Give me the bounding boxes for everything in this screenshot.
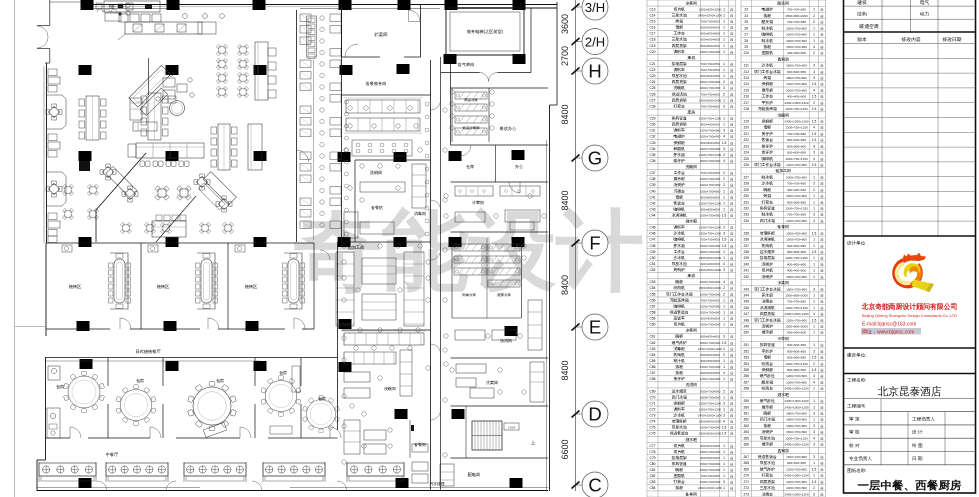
svg-text:1: 1 xyxy=(723,450,725,454)
svg-text:1800×700×800: 1800×700×800 xyxy=(700,159,721,163)
svg-text:270: 270 xyxy=(743,474,749,478)
svg-text:1500×700×800: 1500×700×800 xyxy=(700,365,721,369)
svg-text:213: 213 xyxy=(743,76,749,80)
svg-text:C60: C60 xyxy=(649,323,655,327)
svg-text:2400×1000×1200: 2400×1000×1200 xyxy=(784,405,809,409)
svg-text:211: 211 xyxy=(744,64,749,68)
svg-text:8400: 8400 xyxy=(560,275,570,295)
svg-text:2000×700×800: 2000×700×800 xyxy=(700,280,721,284)
svg-text:1000×700×800: 1000×700×800 xyxy=(700,292,721,296)
svg-text:1: 1 xyxy=(813,405,815,409)
svg-text:烧烤区: 烧烤区 xyxy=(68,284,82,289)
svg-text:1: 1 xyxy=(723,256,725,260)
svg-text:工程编号: 工程编号 xyxy=(847,403,866,409)
svg-text:1: 1 xyxy=(723,32,725,36)
svg-text:燃气炒灶: 燃气炒灶 xyxy=(759,373,775,378)
svg-text:咖啡机: 咖啡机 xyxy=(674,303,686,308)
svg-text:排风管道: 排风管道 xyxy=(759,342,775,347)
svg-text:4: 4 xyxy=(813,436,815,440)
svg-text:1: 1 xyxy=(723,189,725,193)
svg-text:219: 219 xyxy=(743,120,749,124)
svg-text:3: 3 xyxy=(723,129,725,133)
svg-text:运水烟罩: 运水烟罩 xyxy=(759,249,775,254)
svg-text:4: 4 xyxy=(813,380,815,384)
svg-text:222: 222 xyxy=(743,138,749,142)
svg-text:1: 1 xyxy=(813,175,815,179)
svg-text:24: 24 xyxy=(744,14,748,18)
svg-text:2: 2 xyxy=(723,171,725,175)
svg-text:暖通空调: 暖通空调 xyxy=(859,23,878,30)
svg-text:1.5: 1.5 xyxy=(722,341,727,345)
svg-text:汤粥炉: 汤粥炉 xyxy=(761,324,774,329)
svg-text:1.5: 1.5 xyxy=(722,244,727,248)
svg-text:268: 268 xyxy=(743,461,749,465)
svg-text:四门冰箱: 四门冰箱 xyxy=(760,417,775,422)
svg-text:263: 263 xyxy=(743,424,749,428)
svg-text:1800×700×800: 1800×700×800 xyxy=(700,86,721,90)
svg-text:1500×800×2000: 1500×800×2000 xyxy=(699,432,722,436)
svg-text:1: 1 xyxy=(723,26,725,30)
svg-text:27: 27 xyxy=(744,33,748,37)
svg-text:C50: C50 xyxy=(649,256,655,260)
svg-text:269: 269 xyxy=(743,467,749,471)
svg-text:8400: 8400 xyxy=(560,104,570,124)
svg-text:2: 2 xyxy=(813,101,815,105)
svg-text:洗碗间: 洗碗间 xyxy=(778,112,790,117)
svg-text:C71: C71 xyxy=(649,401,655,405)
svg-text:C32: C32 xyxy=(649,135,655,139)
svg-text:1200×700×800: 1200×700×800 xyxy=(700,304,721,308)
svg-text:1: 1 xyxy=(813,300,815,304)
svg-text:蒸柜: 蒸柜 xyxy=(763,44,772,49)
svg-text:C57: C57 xyxy=(649,304,655,308)
svg-text:展示柜: 展示柜 xyxy=(761,330,774,335)
svg-text:低温冷藏库: 低温冷藏库 xyxy=(462,125,481,130)
svg-text:26: 26 xyxy=(744,26,748,30)
svg-text:1: 1 xyxy=(723,365,725,369)
svg-text:600×600×850: 600×600×850 xyxy=(787,349,806,353)
svg-text:1200×700×800: 1200×700×800 xyxy=(786,318,807,322)
svg-text:C31: C31 xyxy=(649,129,655,133)
svg-text:1-D5A: 1-D5A xyxy=(508,426,516,430)
svg-text:400×400×600: 400×400×600 xyxy=(787,188,806,192)
svg-text:3/H: 3/H xyxy=(585,0,605,15)
svg-text:800×800×800: 800×800×800 xyxy=(700,335,719,339)
svg-text:700×700×850: 700×700×850 xyxy=(700,92,719,96)
svg-text:4: 4 xyxy=(723,135,725,139)
svg-text:3: 3 xyxy=(813,70,815,74)
svg-text:700×700×850: 700×700×850 xyxy=(787,300,806,304)
svg-text:北京奇能商厨设计顾问有限公司: 北京奇能商厨设计顾问有限公司 xyxy=(861,302,958,311)
svg-text:2400×1000×1200: 2400×1000×1200 xyxy=(698,347,723,351)
svg-text:247: 247 xyxy=(743,312,749,316)
svg-text:3: 3 xyxy=(723,414,725,418)
svg-text:223: 223 xyxy=(743,144,749,148)
svg-text:4: 4 xyxy=(723,159,725,163)
svg-text:冷荤间: 冷荤间 xyxy=(778,336,790,341)
svg-text:2400×1000×1200: 2400×1000×1200 xyxy=(784,387,809,391)
svg-text:C74: C74 xyxy=(649,420,655,424)
svg-text:1: 1 xyxy=(723,486,725,490)
svg-text:2000×700×800: 2000×700×800 xyxy=(700,389,721,393)
svg-text:雪柜: 雪柜 xyxy=(675,25,683,30)
svg-text:250: 250 xyxy=(743,331,749,335)
svg-text:1: 1 xyxy=(813,244,815,248)
svg-text:燃气炸炉: 燃气炸炉 xyxy=(671,340,687,345)
svg-text:1500×800×2000: 1500×800×2000 xyxy=(785,14,808,18)
svg-text:260: 260 xyxy=(743,405,749,409)
svg-text:2: 2 xyxy=(723,153,725,157)
svg-text:切片机: 切片机 xyxy=(673,322,686,327)
svg-text:2: 2 xyxy=(723,183,725,187)
svg-text:1500×800×2000: 1500×800×2000 xyxy=(699,256,722,260)
svg-text:C30: C30 xyxy=(649,123,655,127)
svg-text:平扒炉: 平扒炉 xyxy=(761,100,774,105)
svg-text:800×800×800: 800×800×800 xyxy=(700,456,719,460)
svg-text:1.5: 1.5 xyxy=(722,238,727,242)
svg-text:双星水池: 双星水池 xyxy=(672,73,688,78)
svg-text:沙冰机: 沙冰机 xyxy=(761,63,774,68)
svg-text:1: 1 xyxy=(813,238,815,242)
svg-text:上: 上 xyxy=(531,440,536,445)
svg-text:2400×1000×1200: 2400×1000×1200 xyxy=(784,312,809,316)
svg-text:切片机: 切片机 xyxy=(673,443,686,448)
svg-text:2: 2 xyxy=(723,286,725,290)
svg-text:1000×700×800: 1000×700×800 xyxy=(786,380,807,384)
svg-text:2000×700×800: 2000×700×800 xyxy=(786,88,807,92)
svg-text:C79: C79 xyxy=(649,456,655,460)
svg-text:249: 249 xyxy=(743,325,749,329)
svg-text:1.5: 1.5 xyxy=(812,82,817,86)
svg-text:排风管道: 排风管道 xyxy=(759,205,775,210)
svg-text:版本: 版本 xyxy=(856,37,867,43)
svg-text:1200×700×800: 1200×700×800 xyxy=(786,374,807,378)
svg-text:1: 1 xyxy=(723,201,725,205)
svg-text:汤粥炉: 汤粥炉 xyxy=(761,429,774,434)
svg-text:四层货架: 四层货架 xyxy=(672,79,687,84)
svg-text:1000×700×800: 1000×700×800 xyxy=(700,183,721,187)
svg-text:1000×700×800: 1000×700×800 xyxy=(786,486,807,490)
svg-text:400×400×600: 400×400×600 xyxy=(700,123,719,127)
svg-text:C20: C20 xyxy=(649,50,655,54)
svg-text:保鲜柜: 保鲜柜 xyxy=(673,140,686,145)
svg-text:双门工作台冰箱: 双门工作台冰箱 xyxy=(754,286,781,291)
svg-text:C54: C54 xyxy=(649,286,655,290)
svg-text:271: 271 xyxy=(743,480,749,484)
svg-text:800×800×800: 800×800×800 xyxy=(787,368,806,372)
svg-text:C16: C16 xyxy=(649,26,655,30)
svg-text:224: 224 xyxy=(743,151,749,155)
svg-text:700×700×850: 700×700×850 xyxy=(700,171,719,175)
svg-text:建筑: 建筑 xyxy=(856,0,867,6)
svg-text:电气: 电气 xyxy=(920,0,930,6)
svg-text:234: 234 xyxy=(743,219,749,223)
svg-text:C80: C80 xyxy=(649,462,655,466)
svg-text:1500×700×800: 1500×700×800 xyxy=(700,462,721,466)
svg-text:库房: 库房 xyxy=(686,109,695,114)
svg-text:C51: C51 xyxy=(649,262,655,266)
svg-text:蒸柜: 蒸柜 xyxy=(763,423,772,428)
svg-text:C18: C18 xyxy=(649,38,655,42)
svg-text:1: 1 xyxy=(813,8,815,12)
svg-text:备餐间: 备餐间 xyxy=(777,224,790,229)
svg-text:中餐厅: 中餐厅 xyxy=(106,452,119,457)
svg-text:沙冰机: 沙冰机 xyxy=(673,231,686,236)
svg-text:玻璃杯柜: 玻璃杯柜 xyxy=(671,419,687,424)
svg-text:1: 1 xyxy=(723,13,725,17)
svg-text:和面机: 和面机 xyxy=(674,146,686,151)
svg-text:241: 241 xyxy=(743,269,749,273)
svg-text:压面机: 压面机 xyxy=(761,50,774,55)
svg-text:3: 3 xyxy=(813,213,815,217)
svg-text:4: 4 xyxy=(813,45,815,49)
svg-text:咖啡机: 咖啡机 xyxy=(674,206,686,211)
svg-text:制冰机: 制冰机 xyxy=(761,212,774,217)
svg-text:800×800×800: 800×800×800 xyxy=(700,353,719,357)
svg-text:洗碗间: 洗碗间 xyxy=(686,164,698,169)
svg-text:万能蒸烤箱: 万能蒸烤箱 xyxy=(669,297,689,302)
svg-text:调料车: 调料车 xyxy=(673,49,686,54)
svg-text:1800×700×800: 1800×700×800 xyxy=(700,80,721,84)
svg-text:259: 259 xyxy=(743,399,749,403)
svg-text:蒸柜: 蒸柜 xyxy=(674,485,683,490)
svg-text:800×800×800: 800×800×800 xyxy=(700,32,719,36)
svg-text:1800×700×800: 1800×700×800 xyxy=(786,76,807,80)
svg-text:3: 3 xyxy=(723,86,725,90)
svg-text:1200×750×1250: 1200×750×1250 xyxy=(785,107,808,111)
svg-text:1: 1 xyxy=(723,468,725,472)
svg-text:烤鸭炉: 烤鸭炉 xyxy=(673,267,686,272)
svg-text:1200×700×800: 1200×700×800 xyxy=(786,467,807,471)
svg-text:210: 210 xyxy=(743,51,749,55)
svg-text:4: 4 xyxy=(813,374,815,378)
svg-text:碗柜: 碗柜 xyxy=(763,411,772,416)
svg-text:冰淇淋机: 冰淇淋机 xyxy=(672,213,687,218)
svg-text:1: 1 xyxy=(723,50,725,54)
svg-text:3: 3 xyxy=(723,335,725,339)
svg-text:双门工作台冰箱: 双门工作台冰箱 xyxy=(754,69,781,74)
svg-text:2: 2 xyxy=(723,292,725,296)
svg-text:蒸柜: 蒸柜 xyxy=(674,364,683,369)
svg-text:2400×1000×1200: 2400×1000×1200 xyxy=(784,443,809,447)
svg-text:E: E xyxy=(589,317,601,338)
svg-text:4: 4 xyxy=(813,126,815,130)
svg-text:254: 254 xyxy=(743,362,749,366)
svg-text:C66: C66 xyxy=(649,365,655,369)
svg-text:1: 1 xyxy=(813,256,815,260)
svg-text:231: 231 xyxy=(743,200,749,204)
svg-text:汤粥炉: 汤粥炉 xyxy=(673,182,686,187)
svg-text:C72: C72 xyxy=(649,407,655,411)
svg-text:236: 236 xyxy=(743,238,749,242)
svg-text:2: 2 xyxy=(723,92,725,96)
svg-text:1500×700×800: 1500×700×800 xyxy=(700,450,721,454)
svg-text:C41: C41 xyxy=(649,195,655,199)
svg-text:8400: 8400 xyxy=(560,190,570,210)
svg-text:1000×700×800: 1000×700×800 xyxy=(786,219,807,223)
svg-text:调料车: 调料车 xyxy=(673,225,686,230)
svg-text:217: 217 xyxy=(743,101,749,105)
svg-text:碗柜: 碗柜 xyxy=(674,467,683,472)
svg-text:1000×700×800: 1000×700×800 xyxy=(700,323,721,327)
svg-text:保温售饭台: 保温售饭台 xyxy=(669,431,689,436)
svg-text:1500×800×2000: 1500×800×2000 xyxy=(699,268,722,272)
svg-text:烤箱: 烤箱 xyxy=(763,75,772,80)
svg-text:3: 3 xyxy=(723,104,725,108)
svg-text:28: 28 xyxy=(744,39,748,43)
svg-text:3: 3 xyxy=(813,443,815,447)
svg-text:保鲜柜: 保鲜柜 xyxy=(761,119,774,124)
svg-text:2: 2 xyxy=(723,177,725,181)
svg-text:工作台: 工作台 xyxy=(761,94,774,99)
svg-text:C38: C38 xyxy=(649,177,655,181)
svg-text:245: 245 xyxy=(743,300,749,304)
svg-text:雪柜: 雪柜 xyxy=(764,355,772,360)
svg-text:烧烤区: 烧烤区 xyxy=(156,284,170,289)
svg-text:1: 1 xyxy=(723,407,725,411)
svg-text:C53: C53 xyxy=(649,280,655,284)
svg-text:1: 1 xyxy=(813,262,815,266)
svg-text:工程名称:: 工程名称: xyxy=(847,377,867,383)
svg-text:打荷台: 打荷台 xyxy=(673,479,686,484)
svg-text:西厨房: 西厨房 xyxy=(777,56,790,61)
svg-text:C36: C36 xyxy=(649,159,655,163)
svg-text:四层货架: 四层货架 xyxy=(672,122,687,127)
svg-text:1: 1 xyxy=(723,323,725,327)
svg-text:1800×700×800: 1800×700×800 xyxy=(786,418,807,422)
svg-text:煲仔炉: 煲仔炉 xyxy=(673,376,686,381)
svg-text:1.5: 1.5 xyxy=(722,141,727,145)
svg-text:H: H xyxy=(588,61,601,82)
svg-text:排风管道: 排风管道 xyxy=(671,116,687,121)
svg-text:蒸柜: 蒸柜 xyxy=(674,370,683,375)
svg-text:2: 2 xyxy=(723,389,725,393)
svg-text:1500×700×800: 1500×700×800 xyxy=(786,430,807,434)
svg-text:打荷台: 打荷台 xyxy=(673,103,686,108)
svg-text:2000×700×800: 2000×700×800 xyxy=(700,310,721,314)
svg-text:2400×1000×1200: 2400×1000×1200 xyxy=(784,120,809,124)
svg-text:1: 1 xyxy=(723,20,725,24)
svg-text:C49: C49 xyxy=(649,250,655,254)
svg-text:2000×700×800: 2000×700×800 xyxy=(786,39,807,43)
svg-text:251: 251 xyxy=(743,343,749,347)
svg-text:双门工作台冰箱: 双门工作台冰箱 xyxy=(666,291,693,296)
svg-text:电磁炉: 电磁炉 xyxy=(674,134,686,139)
svg-text:600×600×850: 600×600×850 xyxy=(787,461,806,465)
svg-text:600×600×850: 600×600×850 xyxy=(787,138,806,142)
svg-text:开水器: 开水器 xyxy=(674,152,686,157)
svg-text:273: 273 xyxy=(743,492,749,496)
svg-text:1200×750×1250: 1200×750×1250 xyxy=(699,153,722,157)
svg-text:3: 3 xyxy=(723,232,725,236)
svg-text:246: 246 xyxy=(743,306,749,310)
svg-text:2000×700×800: 2000×700×800 xyxy=(700,250,721,254)
svg-text:热狗机: 热狗机 xyxy=(673,352,686,357)
svg-text:1500×700×800: 1500×700×800 xyxy=(786,194,807,198)
svg-text:1800×700×800: 1800×700×800 xyxy=(786,287,807,291)
svg-text:C45: C45 xyxy=(649,226,655,230)
svg-text:88: 88 xyxy=(109,5,115,11)
svg-text:矮仔炉: 矮仔炉 xyxy=(761,143,774,148)
svg-text:1: 1 xyxy=(723,359,725,363)
svg-text:1: 1 xyxy=(813,325,815,329)
svg-text:三星水池: 三星水池 xyxy=(672,12,688,17)
svg-text:C27: C27 xyxy=(649,98,655,102)
svg-text:1: 1 xyxy=(723,98,725,102)
svg-text:265: 265 xyxy=(743,436,749,440)
svg-text:1: 1 xyxy=(813,306,815,310)
svg-text:1.5: 1.5 xyxy=(722,432,727,436)
svg-text:253: 253 xyxy=(743,356,749,360)
svg-text:1: 1 xyxy=(723,68,725,72)
svg-text:4: 4 xyxy=(723,420,725,424)
svg-text:1500×800×2000: 1500×800×2000 xyxy=(785,293,808,297)
svg-text:肉禽冷库: 肉禽冷库 xyxy=(462,292,476,297)
svg-text:燃气炸炉: 燃气炸炉 xyxy=(759,466,775,471)
svg-text:双星水池: 双星水池 xyxy=(672,261,688,266)
svg-text:1: 1 xyxy=(813,206,815,210)
svg-text:1200×750×1250: 1200×750×1250 xyxy=(699,201,722,205)
svg-text:1000×700×800: 1000×700×800 xyxy=(700,426,721,430)
svg-text:1: 1 xyxy=(813,387,815,391)
svg-text:煲仔炉: 煲仔炉 xyxy=(761,131,774,136)
svg-text:咖啡机: 咖啡机 xyxy=(762,32,774,37)
svg-text:库房: 库房 xyxy=(686,273,695,278)
svg-text:沙冰机: 沙冰机 xyxy=(761,181,774,186)
svg-text:保温售饭台: 保温售饭台 xyxy=(669,309,689,314)
svg-text:D: D xyxy=(588,404,601,425)
svg-text:221: 221 xyxy=(743,132,749,136)
svg-text:1: 1 xyxy=(723,456,725,460)
svg-text:C61: C61 xyxy=(649,335,655,339)
svg-text:C46: C46 xyxy=(649,232,655,236)
svg-text:审 核: 审 核 xyxy=(849,430,860,435)
svg-text:600×600×850: 600×600×850 xyxy=(787,244,806,248)
svg-text:266: 266 xyxy=(743,443,749,447)
svg-text:1000×700×800: 1000×700×800 xyxy=(700,135,721,139)
svg-text:C22: C22 xyxy=(649,68,655,72)
svg-text:3600: 3600 xyxy=(560,14,570,34)
svg-text:C23: C23 xyxy=(649,74,655,78)
svg-text:工作台: 工作台 xyxy=(673,170,686,175)
svg-text:2400×1000×1200: 2400×1000×1200 xyxy=(784,492,809,496)
svg-text:C13: C13 xyxy=(649,7,655,11)
svg-text:榨汁机: 榨汁机 xyxy=(673,358,686,363)
svg-text:242: 242 xyxy=(743,275,749,279)
svg-text:1: 1 xyxy=(723,195,725,199)
svg-text:4: 4 xyxy=(723,262,725,266)
svg-text:800×800×800: 800×800×800 xyxy=(700,359,719,363)
svg-text:专业负责人: 专业负责人 xyxy=(849,456,872,461)
svg-text:醒发箱: 醒发箱 xyxy=(761,19,774,24)
svg-text:1200×750×1250: 1200×750×1250 xyxy=(699,226,722,230)
svg-text:237: 237 xyxy=(743,244,749,248)
svg-text:700×700×850: 700×700×850 xyxy=(787,20,806,24)
svg-text:1200×700×800: 1200×700×800 xyxy=(700,377,721,381)
svg-text:1.5: 1.5 xyxy=(812,318,817,322)
svg-text:绞肉机: 绞肉机 xyxy=(674,285,686,290)
svg-text:2400×1000×1200: 2400×1000×1200 xyxy=(698,414,723,418)
svg-text:运水烟罩: 运水烟罩 xyxy=(671,388,687,393)
svg-text:1: 1 xyxy=(723,377,725,381)
svg-text:挂墙层架: 挂墙层架 xyxy=(759,255,775,260)
svg-text:矮仔炉: 矮仔炉 xyxy=(673,158,686,163)
svg-text:C84: C84 xyxy=(649,486,655,490)
svg-text:包房: 包房 xyxy=(279,370,287,375)
svg-text:C75: C75 xyxy=(649,426,655,430)
svg-text:1.5: 1.5 xyxy=(812,120,817,124)
svg-text:800×800×800: 800×800×800 xyxy=(787,250,806,254)
